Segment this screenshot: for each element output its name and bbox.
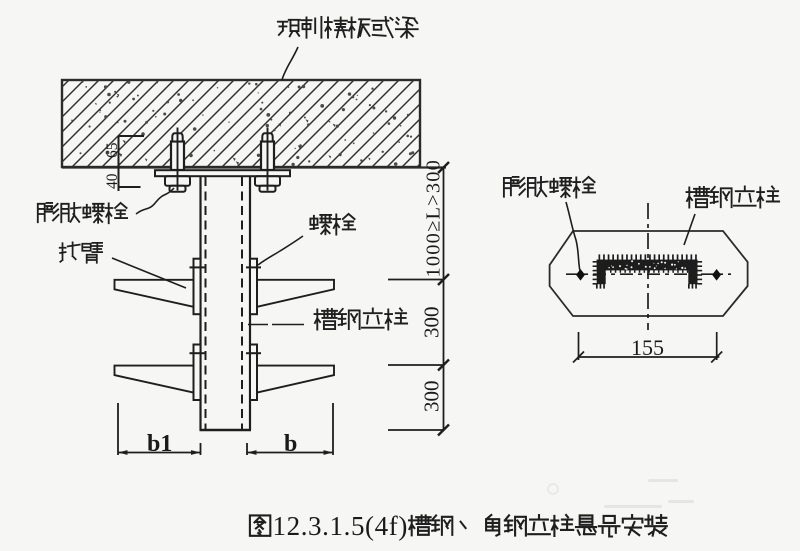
svg-text:65: 65 xyxy=(104,142,121,158)
svg-text:40: 40 xyxy=(104,173,121,189)
svg-text:b1: b1 xyxy=(147,431,172,457)
svg-text:300: 300 xyxy=(420,307,444,339)
svg-text:12.3.1.5(4f): 12.3.1.5(4f) xyxy=(273,511,408,541)
svg-text:300: 300 xyxy=(420,381,444,413)
svg-text:155: 155 xyxy=(631,335,664,360)
svg-text:1000≥L>300: 1000≥L>300 xyxy=(423,159,445,278)
svg-text:b: b xyxy=(284,431,297,457)
